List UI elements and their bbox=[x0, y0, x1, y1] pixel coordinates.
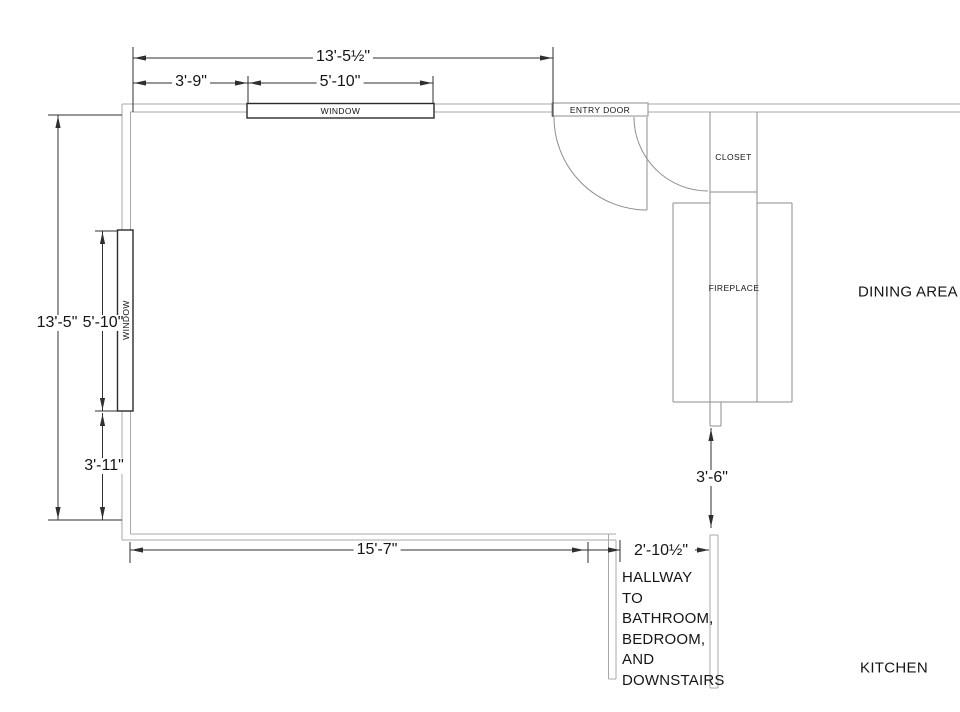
dimension-arrowheads bbox=[55, 55, 713, 552]
entry-door-swing-arc bbox=[554, 117, 647, 210]
hallway-note-line: BATHROOM, bbox=[622, 609, 725, 630]
hallway-note-line: HALLWAY bbox=[622, 568, 725, 589]
dining-area-label: DINING AREA bbox=[858, 285, 958, 300]
hallway-note-line: DOWNSTAIRS bbox=[622, 671, 725, 692]
hallway-note-line: AND bbox=[622, 650, 725, 671]
dim-fireplace-to-hallway: 3'-6" bbox=[693, 470, 731, 486]
window-top-label: WINDOW bbox=[321, 107, 361, 116]
dim-hallway-width: 2'-10½" bbox=[631, 543, 691, 559]
floor-plan-drawing bbox=[0, 0, 960, 712]
dim-left-window: 5'-10" bbox=[80, 315, 127, 331]
dimension-lines bbox=[48, 47, 711, 563]
floor-plan: 13'-5½" 3'-9" 5'-10" 13'-5" 5'-10" 3'-11… bbox=[0, 0, 960, 712]
dim-top-window: 5'-10" bbox=[317, 74, 364, 90]
fireplace-label: FIREPLACE bbox=[709, 284, 760, 293]
dim-top-left-segment: 3'-9" bbox=[172, 74, 210, 90]
dim-left-total: 13'-5" bbox=[34, 315, 81, 331]
hallway-note-line: BEDROOM, bbox=[622, 630, 725, 651]
dim-bottom-wall: 15'-7" bbox=[354, 542, 401, 558]
hallway-note-line: TO bbox=[622, 589, 725, 610]
hallway-left-wall bbox=[609, 534, 617, 679]
dim-top-total: 13'-5½" bbox=[313, 49, 373, 65]
closet-label: CLOSET bbox=[715, 153, 751, 162]
dim-left-below-window: 3'-11" bbox=[81, 458, 127, 474]
window-left-label: WINDOW bbox=[122, 300, 131, 340]
hallway-note: HALLWAY TO BATHROOM, BEDROOM, AND DOWNST… bbox=[622, 568, 725, 692]
closet-door-swing-arc bbox=[634, 117, 708, 191]
entry-door-label: ENTRY DOOR bbox=[570, 105, 630, 114]
bottom-wall bbox=[122, 534, 616, 540]
kitchen-label: KITCHEN bbox=[860, 661, 928, 676]
fireplace-outline bbox=[673, 203, 792, 426]
